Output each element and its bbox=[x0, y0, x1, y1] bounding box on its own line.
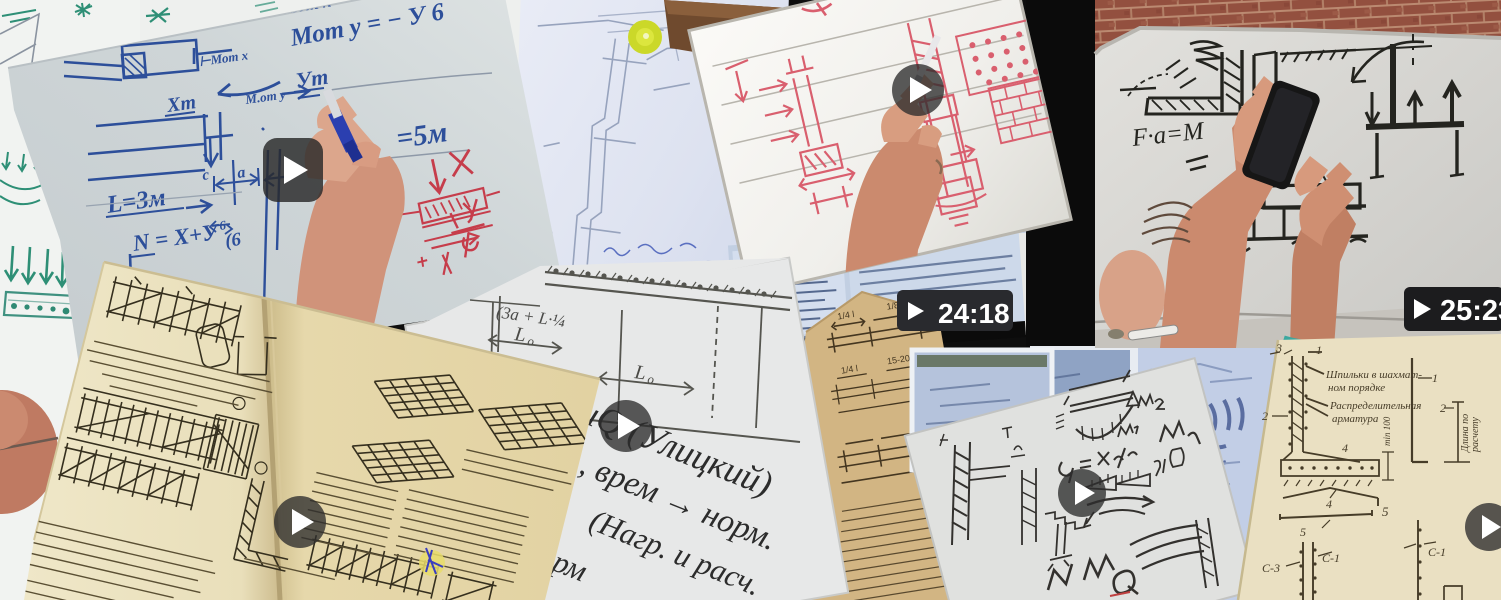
svg-text:3: 3 bbox=[1275, 341, 1282, 355]
svg-text:ном порядке: ном порядке bbox=[1328, 382, 1385, 394]
svg-text:25:23: 25:23 bbox=[1440, 295, 1501, 327]
svg-text:арматура: арматура bbox=[1332, 413, 1379, 425]
svg-text:С-1: С-1 bbox=[1428, 545, 1446, 559]
svg-text:1: 1 bbox=[1316, 343, 1322, 357]
svg-text:4: 4 bbox=[1326, 497, 1332, 511]
svg-text:2: 2 bbox=[1262, 409, 1268, 423]
svg-text:Ут: Ут bbox=[294, 64, 330, 93]
svg-text:1: 1 bbox=[1432, 371, 1438, 385]
svg-text:расчету: расчету bbox=[1470, 417, 1481, 453]
svg-text:4: 4 bbox=[1342, 441, 1348, 455]
svg-text:С-3: С-3 bbox=[1262, 561, 1280, 575]
svg-text:24:18: 24:18 bbox=[938, 298, 1010, 329]
svg-text:2: 2 bbox=[1440, 401, 1446, 415]
svg-text:5: 5 bbox=[1382, 504, 1389, 519]
svg-text:min 100: min 100 bbox=[1382, 416, 1392, 446]
svg-text:С-1: С-1 bbox=[1322, 551, 1340, 565]
svg-text:Распределительная: Распределительная bbox=[1329, 400, 1421, 412]
svg-text:Шпильки в шахмат-: Шпильки в шахмат- bbox=[1325, 369, 1422, 381]
svg-text:5: 5 bbox=[1300, 525, 1306, 539]
